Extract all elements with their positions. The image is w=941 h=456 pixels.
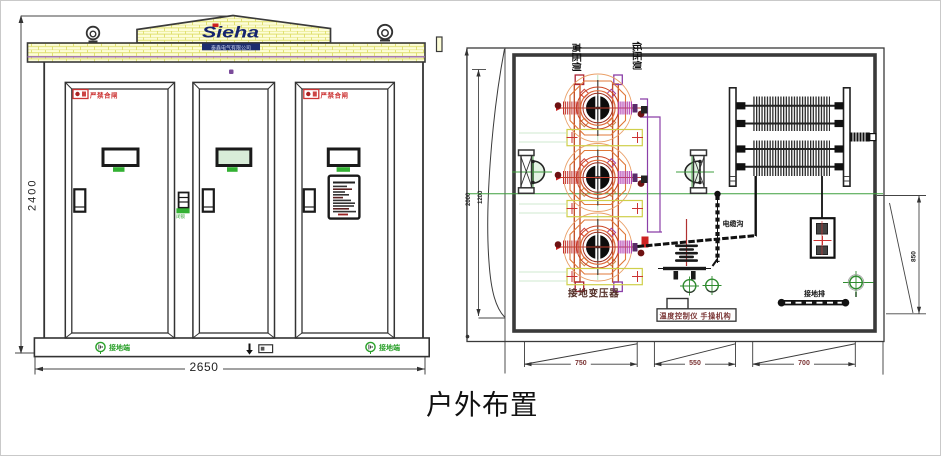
svg-text:Sieha: Sieha — [202, 25, 259, 42]
svg-text:850: 850 — [911, 251, 918, 262]
svg-text:700: 700 — [798, 360, 810, 367]
svg-text:接地变压器: 接地变压器 — [568, 288, 620, 300]
svg-text:550: 550 — [689, 360, 701, 367]
svg-text:高压侧: 高压侧 — [570, 43, 582, 72]
svg-text:1200: 1200 — [478, 190, 484, 204]
svg-text:严禁合闸: 严禁合闸 — [320, 91, 349, 100]
svg-text:电缆沟: 电缆沟 — [723, 219, 744, 228]
svg-text:低压侧: 低压侧 — [631, 41, 643, 71]
svg-text:闭锁: 闭锁 — [176, 213, 185, 220]
svg-text:严禁合闸: 严禁合闸 — [89, 91, 118, 100]
svg-text:泰鑫电气有限公司: 泰鑫电气有限公司 — [211, 44, 251, 51]
svg-text:接地端: 接地端 — [379, 343, 400, 352]
svg-text:2400: 2400 — [27, 179, 39, 211]
svg-text:户外布置: 户外布置 — [426, 389, 538, 420]
svg-text:温度控制仪 手操机构: 温度控制仪 手操机构 — [659, 312, 732, 321]
svg-text:750: 750 — [575, 360, 587, 367]
svg-text:接地端: 接地端 — [109, 343, 130, 352]
svg-text:2650: 2650 — [189, 360, 218, 374]
svg-text:接地排: 接地排 — [804, 289, 825, 298]
